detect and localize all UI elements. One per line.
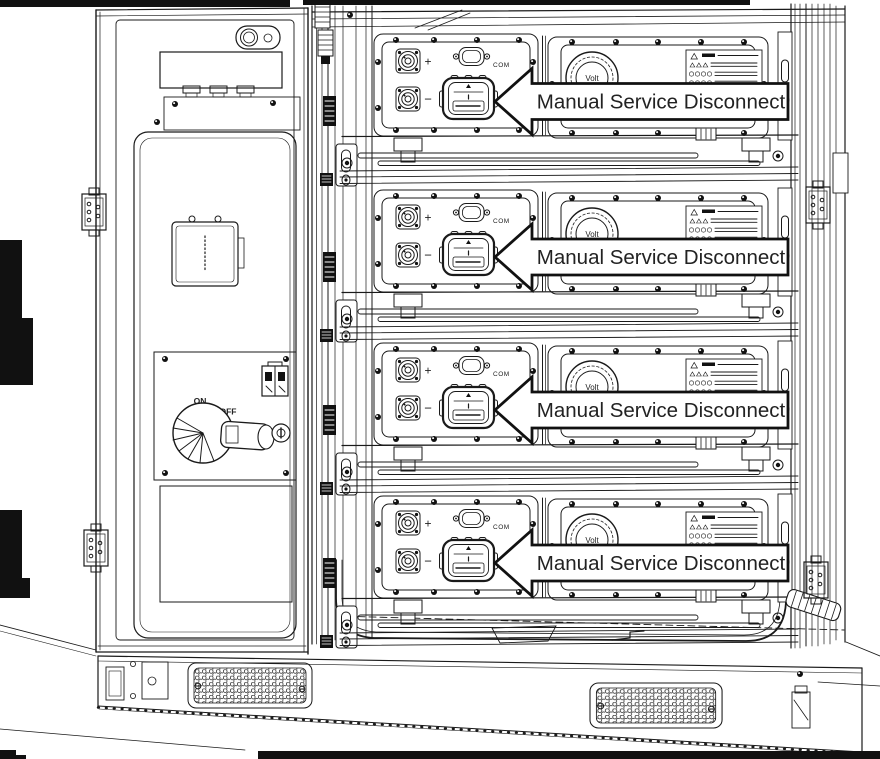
cabinet-door: ON OFF xyxy=(82,8,308,654)
corrugated-cable xyxy=(784,588,842,622)
callout-label-4: Manual Service Disconnect xyxy=(537,552,786,575)
door-lower-panel xyxy=(160,486,292,602)
door-hinge-upper xyxy=(82,188,106,236)
cabinet-plinth xyxy=(98,656,862,755)
ground-lines xyxy=(0,625,880,750)
cabinet-line-drawing: + COM − xyxy=(0,0,880,759)
door-device-box xyxy=(172,216,244,286)
callout-label-3: Manual Service Disconnect xyxy=(537,399,786,422)
disconnect-switch-panel: ON OFF xyxy=(154,352,296,480)
diagram-stage: + COM − xyxy=(0,0,880,759)
keylock xyxy=(272,424,290,442)
callout-label-1: Manual Service Disconnect xyxy=(537,91,786,114)
door-junction-box xyxy=(160,52,282,97)
callout-label-2: Manual Service Disconnect xyxy=(537,246,786,269)
door-subpanel xyxy=(154,97,300,130)
vent-grille-left xyxy=(188,663,312,708)
vent-grille-right xyxy=(590,683,722,728)
rotary-disconnect-handle xyxy=(173,403,274,463)
door-latch xyxy=(236,26,280,49)
circuit-breaker xyxy=(262,362,288,396)
